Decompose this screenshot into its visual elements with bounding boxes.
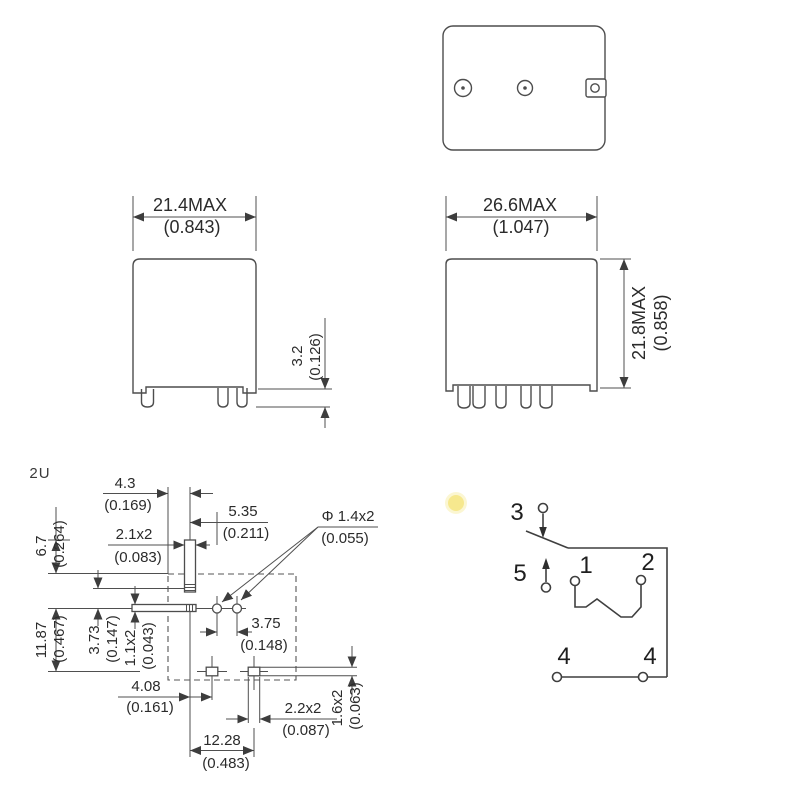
dim-label: (0.169) <box>104 497 152 514</box>
dim-label: (0.483) <box>202 755 250 772</box>
slot-pad-vertical <box>185 540 196 592</box>
dim-label: (0.083) <box>114 549 162 566</box>
dim-label: 4.08 <box>131 678 160 695</box>
height-dimension: 21.8MAX (0.858) <box>600 259 671 388</box>
cropped-text-fragment: 2U <box>29 465 50 482</box>
vent-hole-left <box>455 80 472 97</box>
pin-length-dimension: 3.2 (0.126) <box>256 318 332 428</box>
terminal-circle-5 <box>542 583 551 592</box>
pin <box>496 386 506 408</box>
pin <box>218 388 228 407</box>
pin-length-mm: 3.2 <box>289 346 306 367</box>
relay-case-side-outline <box>446 259 597 391</box>
relay-technical-drawing: 21.4MAX (0.843) 3.2 (0.126) 26.6MAX (1.0… <box>0 0 800 800</box>
dim-12-28: 12.28 (0.483) <box>190 732 254 772</box>
dim-4-08: 4.08 (0.161) <box>118 678 212 716</box>
wiring-schematic: 3 5 1 2 4 4 <box>445 492 667 682</box>
pin <box>142 389 154 407</box>
dim-3-75: 3.75 (0.148) <box>200 615 288 654</box>
dim-label: (0.148) <box>240 637 288 654</box>
pin <box>540 386 552 408</box>
dim-label: 3.73 <box>86 625 103 654</box>
pin3-label: 3 <box>510 499 523 526</box>
dim-label: (0.087) <box>282 722 330 739</box>
dim-5-35: 5.35 (0.211) <box>190 503 269 542</box>
pin <box>473 386 485 408</box>
slot-pad-horizontal <box>132 605 196 612</box>
arrow-up-pin5 <box>542 558 550 582</box>
pin2-label: 2 <box>641 549 654 576</box>
side-height-mm: 21.8MAX <box>629 286 649 360</box>
dim-label: Φ 1.4x2 <box>322 508 375 525</box>
pin1-label: 1 <box>579 552 592 579</box>
dim-label: 5.35 <box>228 503 257 520</box>
pin-length-in: (0.126) <box>307 333 324 381</box>
dim-label: (0.211) <box>223 525 269 542</box>
mounting-tab <box>586 79 606 97</box>
dim-2-2x2: 2.2x2 (0.087) <box>226 700 337 739</box>
terminal-circle-4-right <box>639 673 648 682</box>
coil-symbol <box>575 585 641 617</box>
front-view: 21.4MAX (0.843) 3.2 (0.126) <box>133 195 332 428</box>
top-view <box>443 26 606 150</box>
front-width-mm: 21.4MAX <box>153 195 227 215</box>
dim-label: 12.28 <box>203 732 241 749</box>
side-width-mm: 26.6MAX <box>483 195 557 215</box>
dim-label: (0.264) <box>51 520 68 568</box>
dim-1-6x2: 1.6x2 (0.063) <box>329 646 364 730</box>
dim-label: 6.7 <box>33 536 50 557</box>
pin4-right-label: 4 <box>643 643 656 670</box>
dim-11-87: 11.87 (0.467) <box>33 609 68 672</box>
arrow-down-pin3 <box>539 514 547 539</box>
terminal-circle-3 <box>539 504 548 513</box>
dim-label: 3.75 <box>251 615 280 632</box>
terminal-circle-2 <box>637 576 646 585</box>
side-height-in: (0.858) <box>651 294 671 351</box>
dim-label: 11.87 <box>33 622 50 658</box>
vent-hole-center <box>518 81 533 96</box>
dim-label: (0.055) <box>321 530 369 547</box>
pin <box>237 388 247 407</box>
dim-label: 1.6x2 <box>329 690 346 727</box>
pin <box>458 386 470 408</box>
highlight-dot <box>448 495 464 511</box>
dim-1-1x2: 1.1x2 (0.043) <box>122 586 157 670</box>
dim-label: 1.1x2 <box>122 630 139 667</box>
side-view: 26.6MAX (1.047) 21.8MAX (0.858) <box>446 195 671 408</box>
dim-label: 2.1x2 <box>116 526 153 543</box>
dim-label: (0.147) <box>104 615 121 663</box>
dim-label: (0.467) <box>51 615 68 663</box>
terminal-circle-1 <box>571 577 580 586</box>
dim-label: 4.3 <box>115 475 136 492</box>
pcb-layout-view: 2U <box>29 465 378 772</box>
datasheet-drawing-page: 21.4MAX (0.843) 3.2 (0.126) 26.6MAX (1.0… <box>0 0 800 800</box>
pin5-label: 5 <box>513 560 526 587</box>
dim-6-7: 6.7 (0.264) <box>33 507 68 574</box>
side-width-in: (1.047) <box>492 217 549 237</box>
pin4-left-label: 4 <box>557 643 570 670</box>
dim-label: (0.161) <box>126 699 174 716</box>
dim-label: 2.2x2 <box>285 700 322 717</box>
terminal-circle-4-left <box>553 673 562 682</box>
dim-label: (0.043) <box>140 622 157 670</box>
dim-3-73: 3.73 (0.147) <box>86 570 121 663</box>
dim-label: (0.063) <box>347 682 364 730</box>
switch-blade <box>526 531 568 548</box>
front-width-in: (0.843) <box>163 217 220 237</box>
pin <box>521 386 531 408</box>
relay-case-front-outline <box>133 259 256 393</box>
